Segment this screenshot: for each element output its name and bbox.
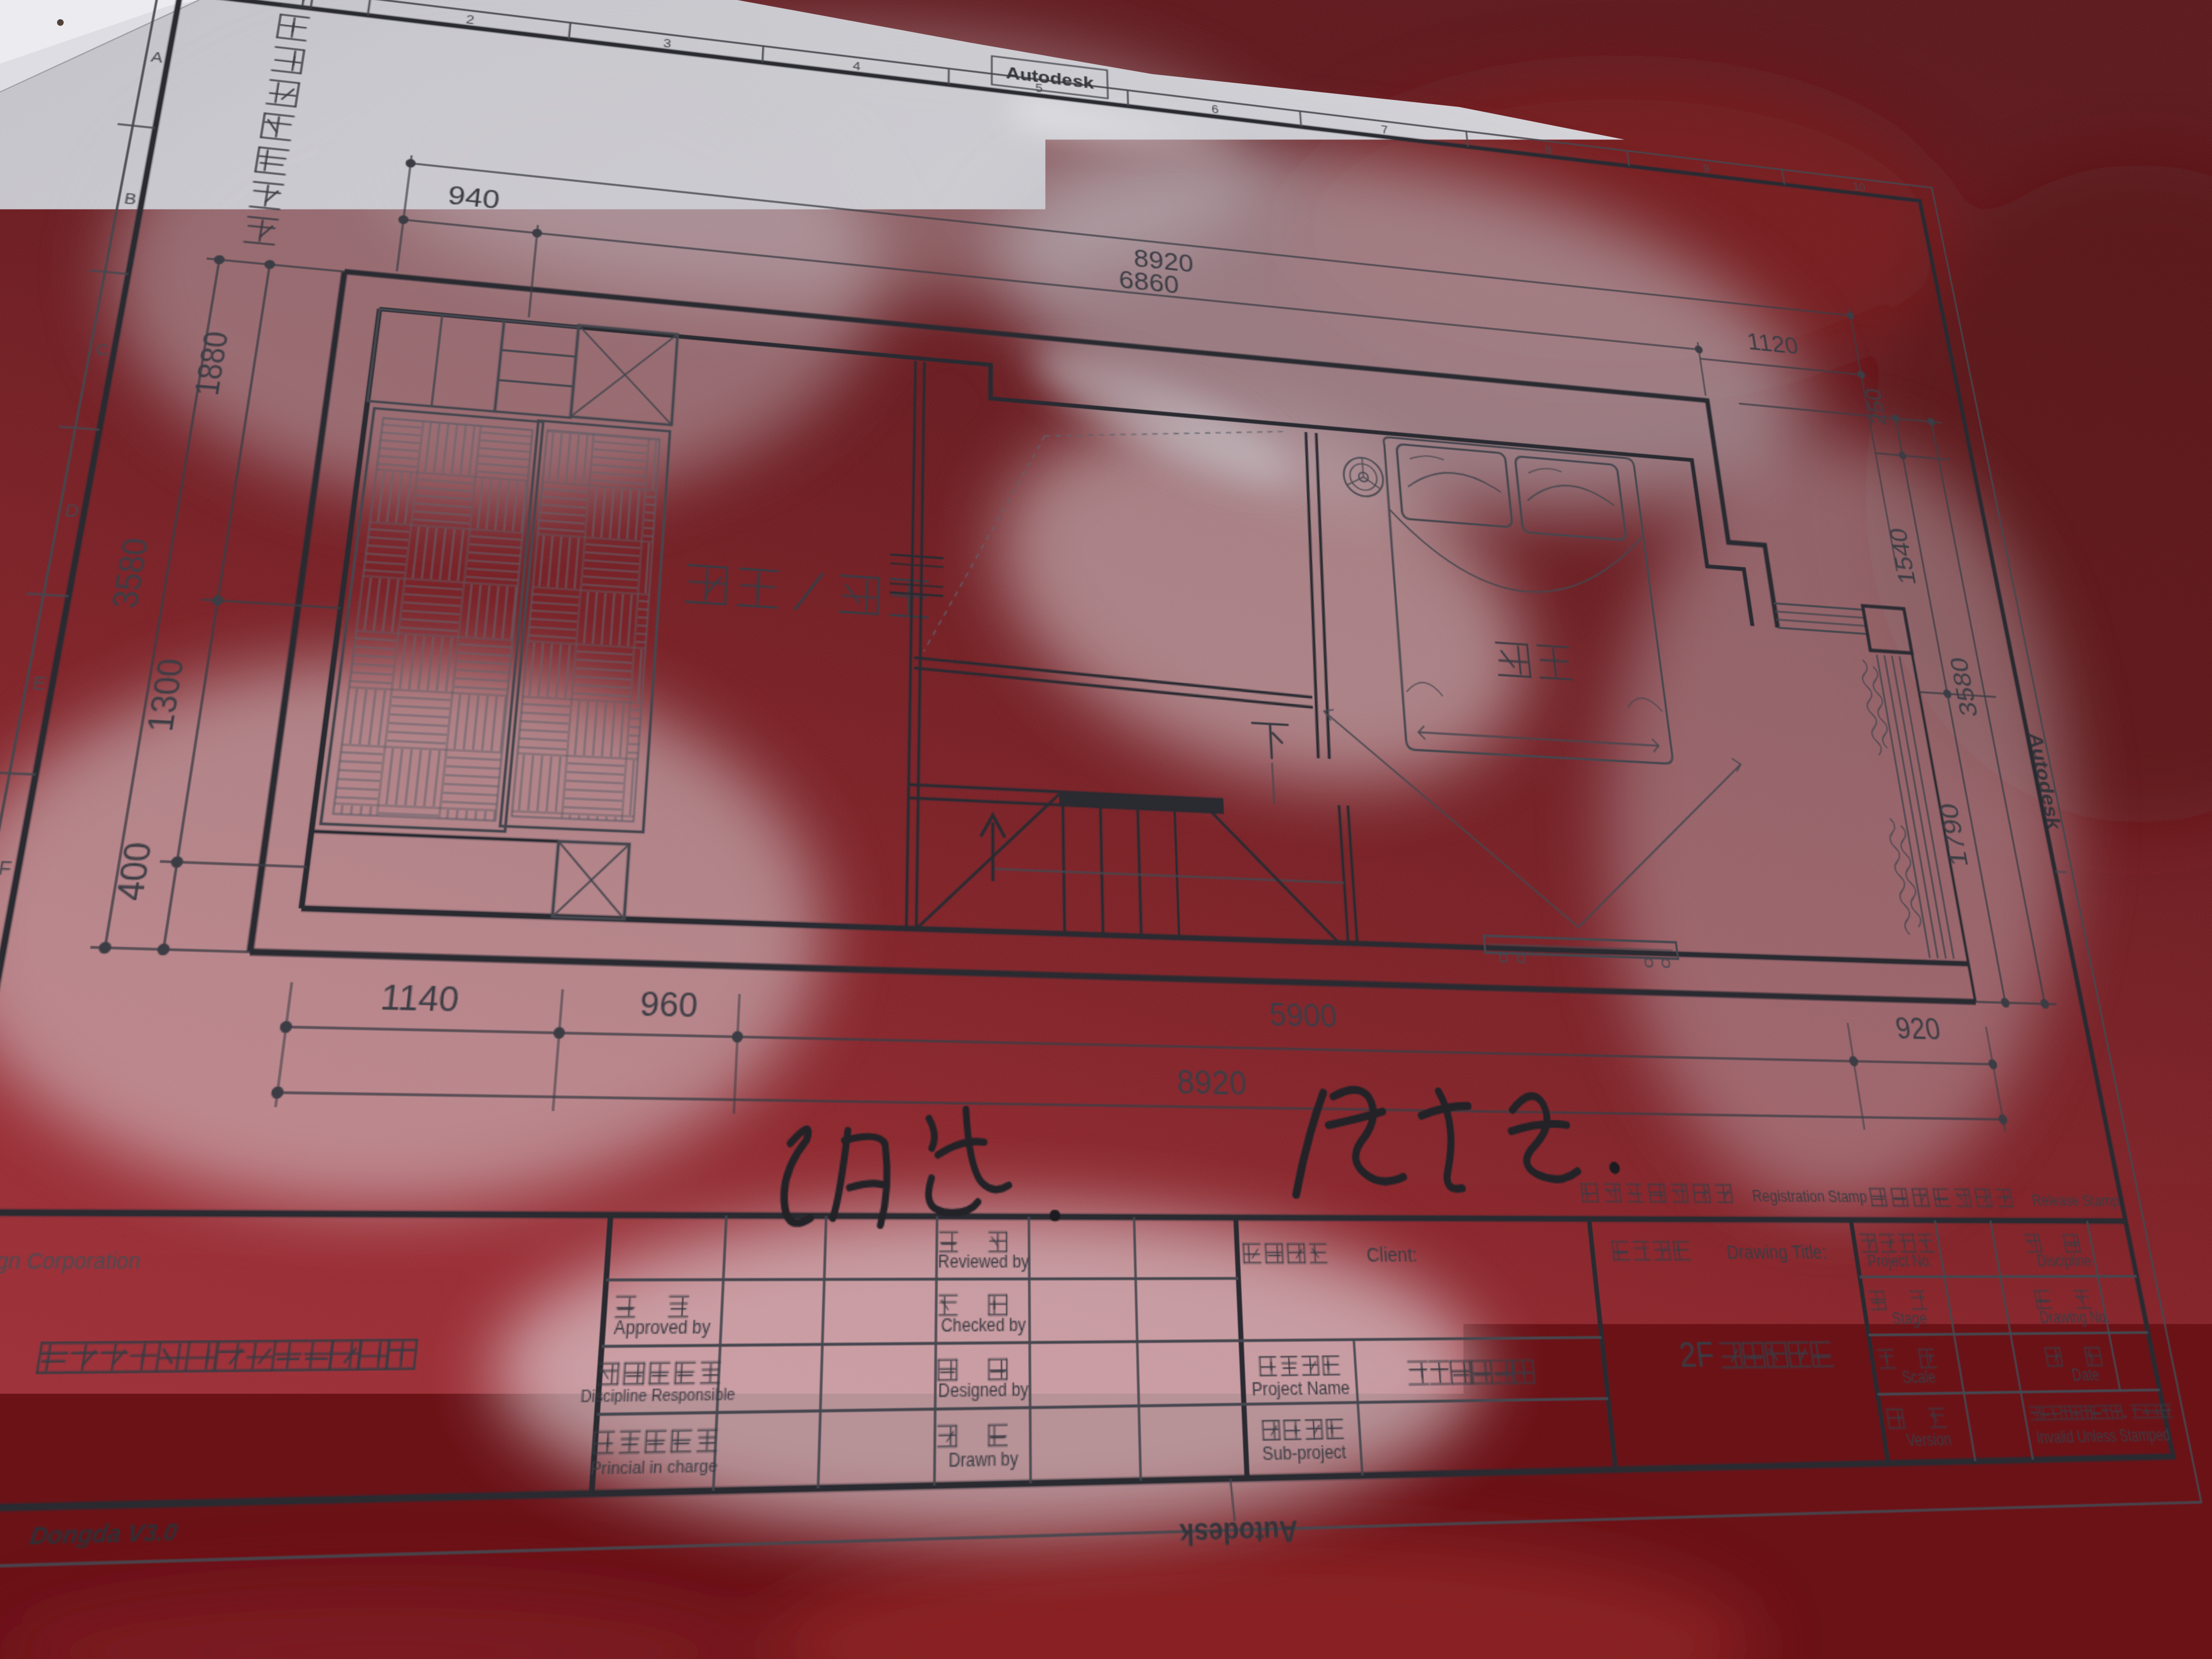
svg-text:1540: 1540 [1884, 527, 1921, 586]
svg-text:3580: 3580 [105, 537, 156, 610]
svg-text:Checked by: Checked by [941, 1316, 1026, 1336]
svg-text:Discipline Responsible: Discipline Responsible [580, 1385, 736, 1406]
svg-text:2F: 2F [1677, 1335, 1717, 1375]
svg-text:Reviewed by: Reviewed by [938, 1252, 1030, 1272]
svg-text:920: 920 [1893, 1012, 1943, 1047]
svg-text:Drawing Title:: Drawing Title: [1725, 1242, 1828, 1263]
svg-text:Design Corporation: Design Corporation [0, 1249, 143, 1274]
svg-text:Autodesk: Autodesk [1178, 1514, 1299, 1553]
svg-text:250: 250 [1860, 387, 1891, 426]
svg-text:10: 10 [1852, 180, 1866, 194]
svg-text:2: 2 [465, 12, 475, 27]
svg-text:Drawing No.: Drawing No. [2038, 1309, 2111, 1327]
svg-text:Princial in charge: Princial in charge [590, 1455, 718, 1479]
svg-text:Project No.: Project No. [1866, 1253, 1934, 1271]
svg-text:D: D [63, 501, 81, 521]
svg-text:B: B [123, 190, 138, 207]
svg-text:Client:: Client: [1366, 1244, 1419, 1266]
svg-text:Dongda V3.0: Dongda V3.0 [28, 1519, 179, 1550]
svg-text:Scale: Scale [1901, 1369, 1937, 1387]
svg-text:Discipline: Discipline [2035, 1253, 2092, 1270]
svg-text:Approved by: Approved by [613, 1318, 712, 1339]
svg-text:Release Stamp: Release Stamp [2030, 1192, 2120, 1210]
svg-text:1120: 1120 [1745, 329, 1800, 360]
svg-text:Registration Stamp: Registration Stamp [1751, 1188, 1869, 1206]
svg-text:4: 4 [853, 59, 861, 73]
svg-text:A: A [150, 49, 164, 66]
svg-text:Project Name: Project Name [1251, 1377, 1351, 1400]
svg-text:Invalid Unless Stamped: Invalid Unless Stamped [2035, 1426, 2171, 1447]
svg-text:E: E [31, 673, 48, 693]
svg-text:1790: 1790 [1934, 803, 1974, 867]
svg-text:Designed by: Designed by [938, 1380, 1029, 1402]
svg-text:8: 8 [1544, 143, 1553, 156]
svg-text:F: F [0, 857, 13, 879]
svg-text:7: 7 [1381, 123, 1389, 137]
svg-text:5900: 5900 [1268, 997, 1338, 1035]
svg-text:3: 3 [663, 36, 672, 50]
svg-text:Version: Version [1905, 1431, 1953, 1450]
svg-text:6: 6 [1211, 102, 1219, 116]
svg-text:9: 9 [1702, 162, 1711, 175]
svg-text:1880: 1880 [188, 330, 236, 397]
svg-text:6860: 6860 [1119, 266, 1180, 299]
svg-text:3580: 3580 [1945, 657, 1984, 718]
svg-text:Sub-project: Sub-project [1262, 1441, 1347, 1464]
svg-text:960: 960 [639, 985, 698, 1025]
svg-text:C: C [94, 340, 110, 359]
svg-text:Date: Date [2070, 1367, 2101, 1385]
svg-text:Stage: Stage [1891, 1310, 1928, 1328]
svg-text:Drawn by: Drawn by [949, 1449, 1019, 1471]
svg-text:400: 400 [109, 842, 160, 902]
svg-text:1140: 1140 [379, 978, 461, 1020]
svg-text:Autodesk: Autodesk [2025, 733, 2066, 831]
svg-text:8920: 8920 [1176, 1064, 1248, 1103]
svg-text:940: 940 [447, 180, 501, 215]
